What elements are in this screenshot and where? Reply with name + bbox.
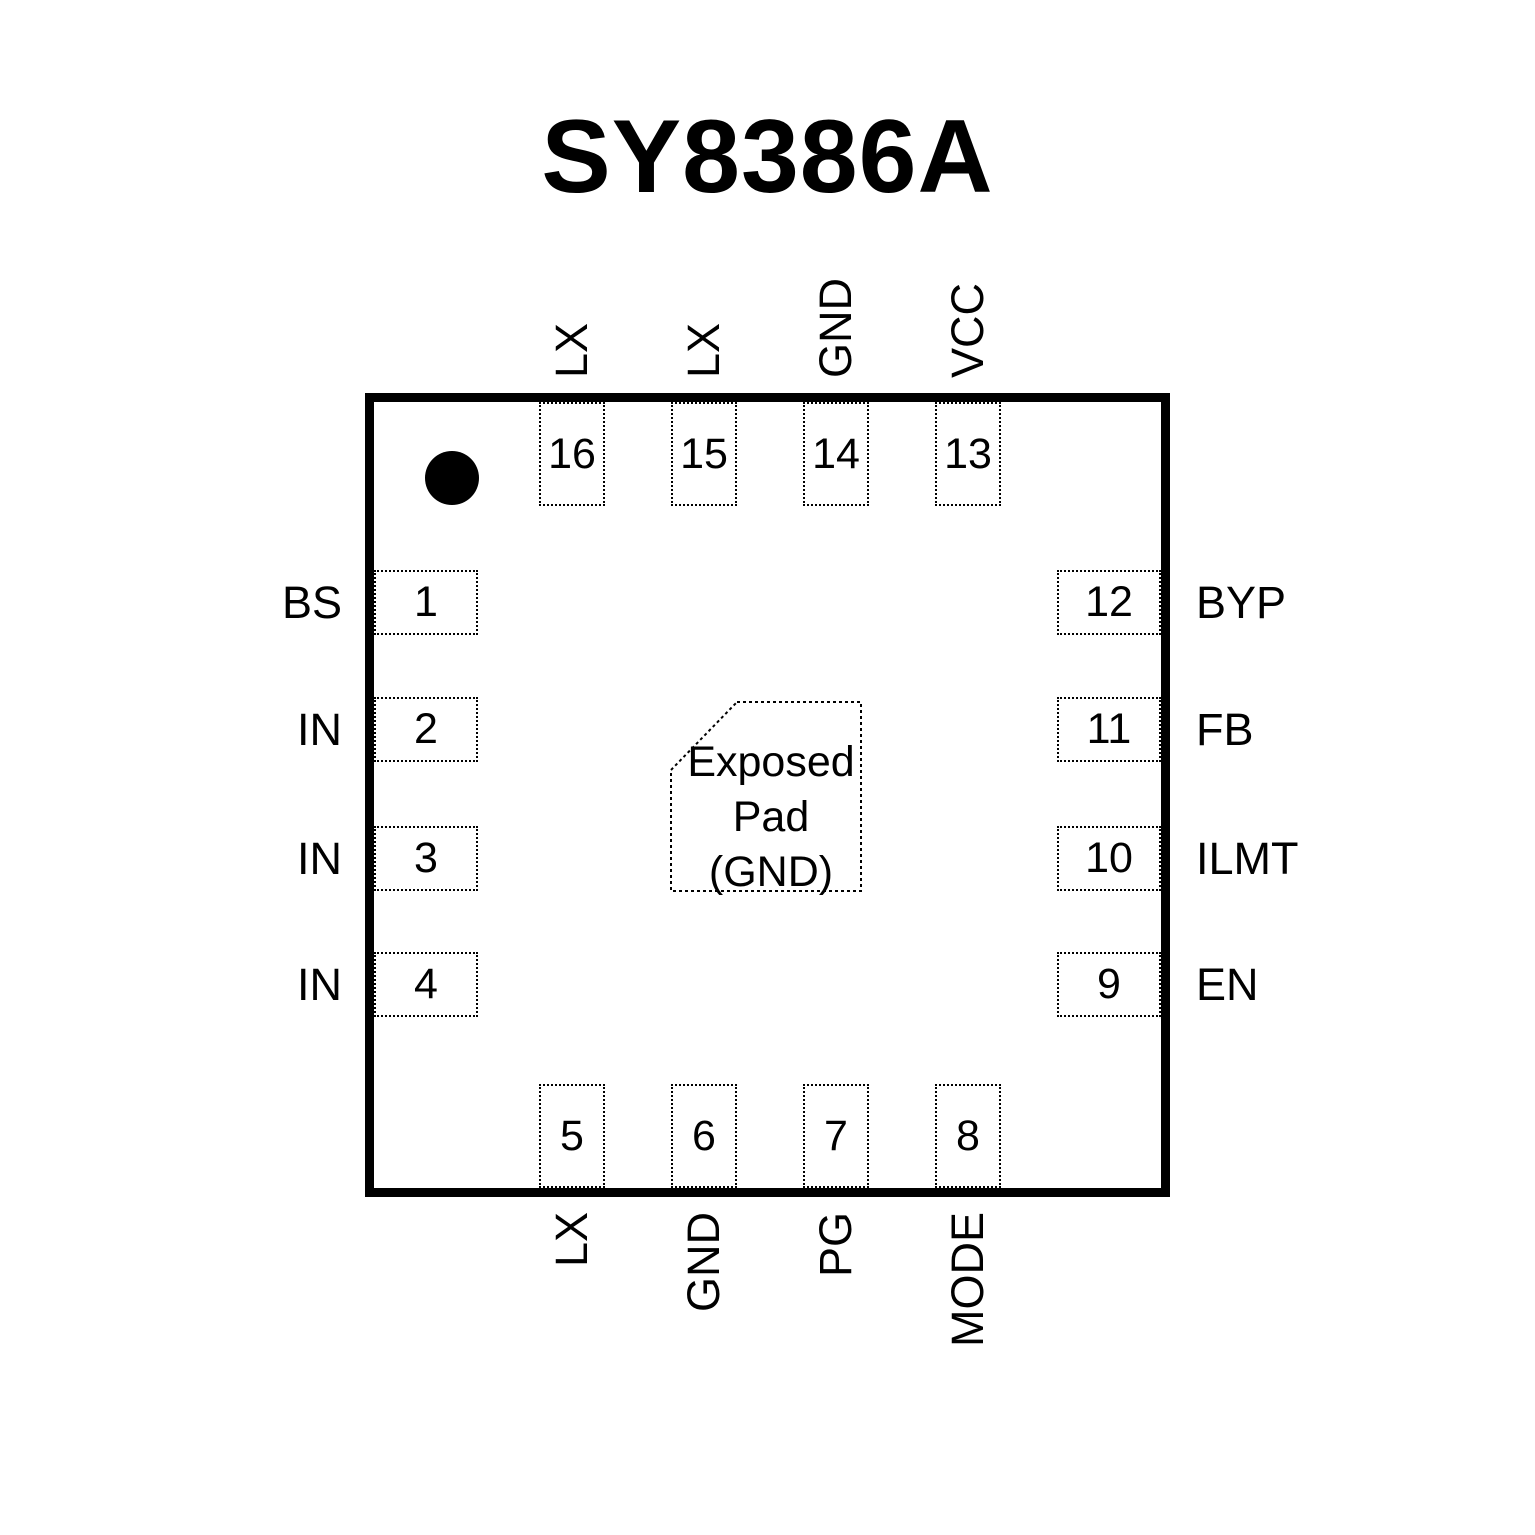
pin-name-15-lx: LX	[679, 178, 729, 378]
pin-name-11-fb: FB	[1196, 697, 1446, 762]
pin-pad-3: 3	[374, 826, 478, 891]
pin-pad-11: 11	[1057, 697, 1161, 762]
pin-pad-8: 8	[935, 1084, 1001, 1188]
exposed-pad-line3: (GND)	[651, 845, 891, 900]
pin-name-1-bs: BS	[140, 570, 342, 635]
exposed-pad-line1: Exposed	[651, 735, 891, 790]
pin-name-12-byp: BYP	[1196, 570, 1446, 635]
pin-pad-9: 9	[1057, 952, 1161, 1017]
pin-name-13-vcc: VCC	[943, 178, 993, 378]
pin-name-14-gnd: GND	[811, 178, 861, 378]
pin-name-8-mode: MODE	[943, 1212, 993, 1412]
pin-pad-10: 10	[1057, 826, 1161, 891]
pin-name-16-lx: LX	[547, 178, 597, 378]
pin-name-5-lx: LX	[547, 1212, 597, 1412]
pinout-diagram: SY8386A Exposed Pad (GND) 16 15 14 13 5 …	[0, 0, 1535, 1535]
pin-pad-12: 12	[1057, 570, 1161, 635]
pin-name-3-in: IN	[140, 826, 342, 891]
pin-pad-1: 1	[374, 570, 478, 635]
pin-name-9-en: EN	[1196, 952, 1446, 1017]
pin-name-7-pg: PG	[811, 1212, 861, 1412]
pin-name-6-gnd: GND	[679, 1212, 729, 1412]
pin-name-2-in: IN	[140, 697, 342, 762]
exposed-pad-label: Exposed Pad (GND)	[651, 735, 891, 900]
pin-pad-14: 14	[803, 402, 869, 506]
pin-pad-6: 6	[671, 1084, 737, 1188]
pin-pad-13: 13	[935, 402, 1001, 506]
pin-pad-16: 16	[539, 402, 605, 506]
pin-pad-2: 2	[374, 697, 478, 762]
pin-pad-7: 7	[803, 1084, 869, 1188]
pin-name-4-in: IN	[140, 952, 342, 1017]
pin-pad-5: 5	[539, 1084, 605, 1188]
pin-name-10-ilmt: ILMT	[1196, 826, 1446, 891]
pin-pad-15: 15	[671, 402, 737, 506]
chip-title: SY8386A	[365, 98, 1170, 217]
exposed-pad-line2: Pad	[651, 790, 891, 845]
pin1-indicator-dot	[425, 451, 479, 505]
pin-pad-4: 4	[374, 952, 478, 1017]
